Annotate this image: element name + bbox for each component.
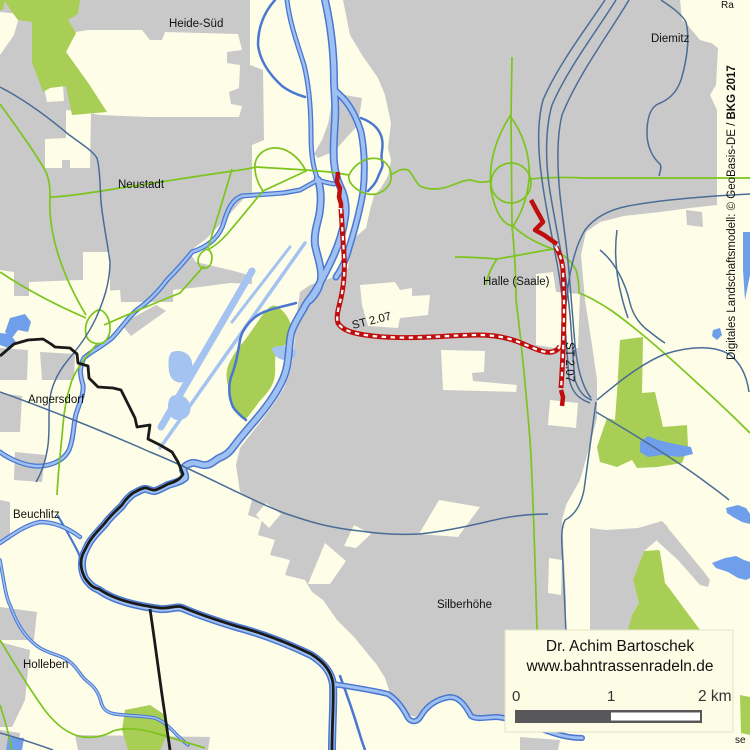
svg-text:se: se <box>735 735 746 746</box>
svg-text:Holleben: Holleben <box>23 659 68 671</box>
svg-text:Silberhöhe: Silberhöhe <box>437 599 492 611</box>
svg-text:2 km: 2 km <box>698 688 732 705</box>
svg-text:Halle (Saale): Halle (Saale) <box>483 276 550 288</box>
svg-text:Angersdorf: Angersdorf <box>28 394 85 406</box>
svg-text:1: 1 <box>607 688 615 705</box>
svg-text:Dr. Achim Bartoschek: Dr. Achim Bartoschek <box>546 638 694 655</box>
svg-text:Ra: Ra <box>721 0 734 11</box>
svg-text:ST 2.07: ST 2.07 <box>563 342 575 382</box>
svg-text:Neustadt: Neustadt <box>118 179 165 191</box>
svg-text:Beuchlitz: Beuchlitz <box>13 509 60 521</box>
svg-text:www.bahntrassenradeln.de: www.bahntrassenradeln.de <box>526 658 714 675</box>
svg-text:0: 0 <box>512 688 520 705</box>
svg-text:Diemitz: Diemitz <box>651 33 690 45</box>
svg-text:Heide-Süd: Heide-Süd <box>169 18 223 30</box>
svg-text:Digitales Landschaftsmodell: ©: Digitales Landschaftsmodell: © GeoBasis-… <box>726 65 738 360</box>
